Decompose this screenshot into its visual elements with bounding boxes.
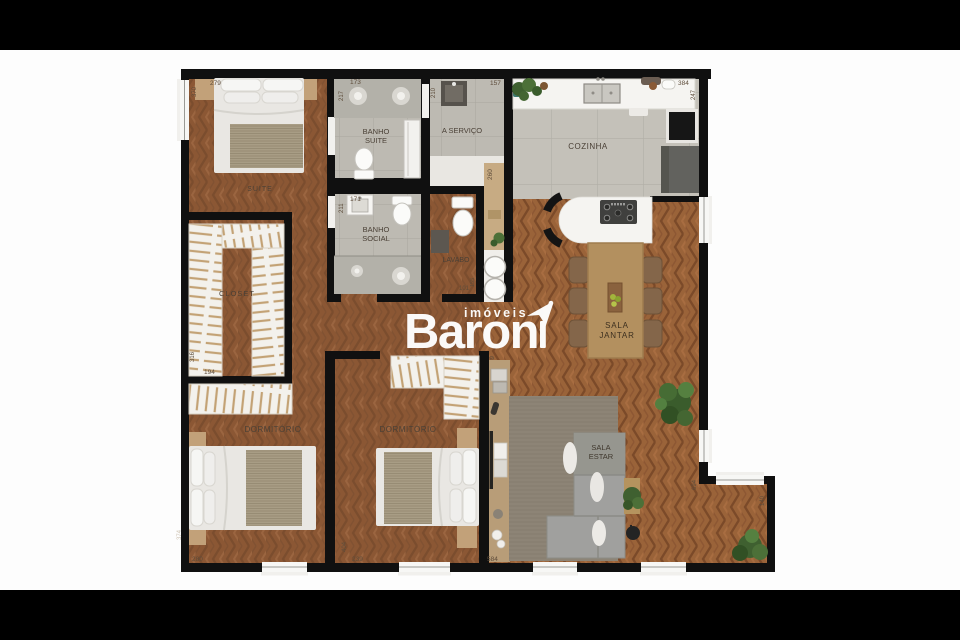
- svg-text:SOCIAL: SOCIAL: [362, 234, 390, 243]
- svg-text:239: 239: [352, 556, 363, 563]
- svg-text:155: 155: [470, 278, 476, 287]
- svg-text:SALA: SALA: [605, 321, 629, 330]
- svg-text:SUITE: SUITE: [365, 136, 387, 145]
- svg-text:279: 279: [210, 80, 221, 87]
- svg-text:404: 404: [342, 541, 348, 552]
- svg-text:SALA: SALA: [591, 443, 610, 452]
- svg-text:217: 217: [339, 90, 345, 101]
- svg-text:694: 694: [692, 479, 698, 490]
- svg-text:JANTAR: JANTAR: [599, 331, 634, 340]
- svg-text:194: 194: [204, 369, 215, 376]
- svg-text:COZINHA: COZINHA: [568, 142, 608, 151]
- svg-text:210: 210: [431, 87, 437, 98]
- svg-text:584: 584: [487, 556, 498, 563]
- svg-text:101: 101: [459, 286, 470, 292]
- svg-text:140: 140: [760, 495, 766, 506]
- svg-text:157: 157: [490, 80, 501, 87]
- svg-text:BANHO: BANHO: [363, 225, 390, 234]
- svg-text:ESTAR: ESTAR: [589, 452, 614, 461]
- svg-text:Baron: Baron: [404, 305, 538, 359]
- svg-text:211: 211: [339, 203, 345, 213]
- svg-text:173: 173: [350, 79, 361, 86]
- svg-text:LAVABO: LAVABO: [443, 257, 471, 264]
- svg-text:374: 374: [177, 529, 183, 540]
- svg-text:A SERVIÇO: A SERVIÇO: [442, 126, 482, 135]
- svg-text:247: 247: [691, 89, 697, 100]
- svg-text:316: 316: [190, 351, 196, 362]
- svg-text:DORMITÓRIO: DORMITÓRIO: [245, 425, 302, 434]
- svg-text:384: 384: [678, 80, 689, 87]
- svg-text:DORMITÓRIO: DORMITÓRIO: [380, 425, 437, 434]
- svg-text:280: 280: [192, 556, 203, 563]
- svg-text:171: 171: [350, 196, 361, 203]
- svg-text:BANHO: BANHO: [363, 127, 390, 136]
- svg-text:SUITE: SUITE: [247, 186, 273, 193]
- svg-text:260: 260: [487, 169, 494, 180]
- svg-text:370: 370: [192, 86, 198, 97]
- svg-text:CLOSET: CLOSET: [219, 289, 255, 298]
